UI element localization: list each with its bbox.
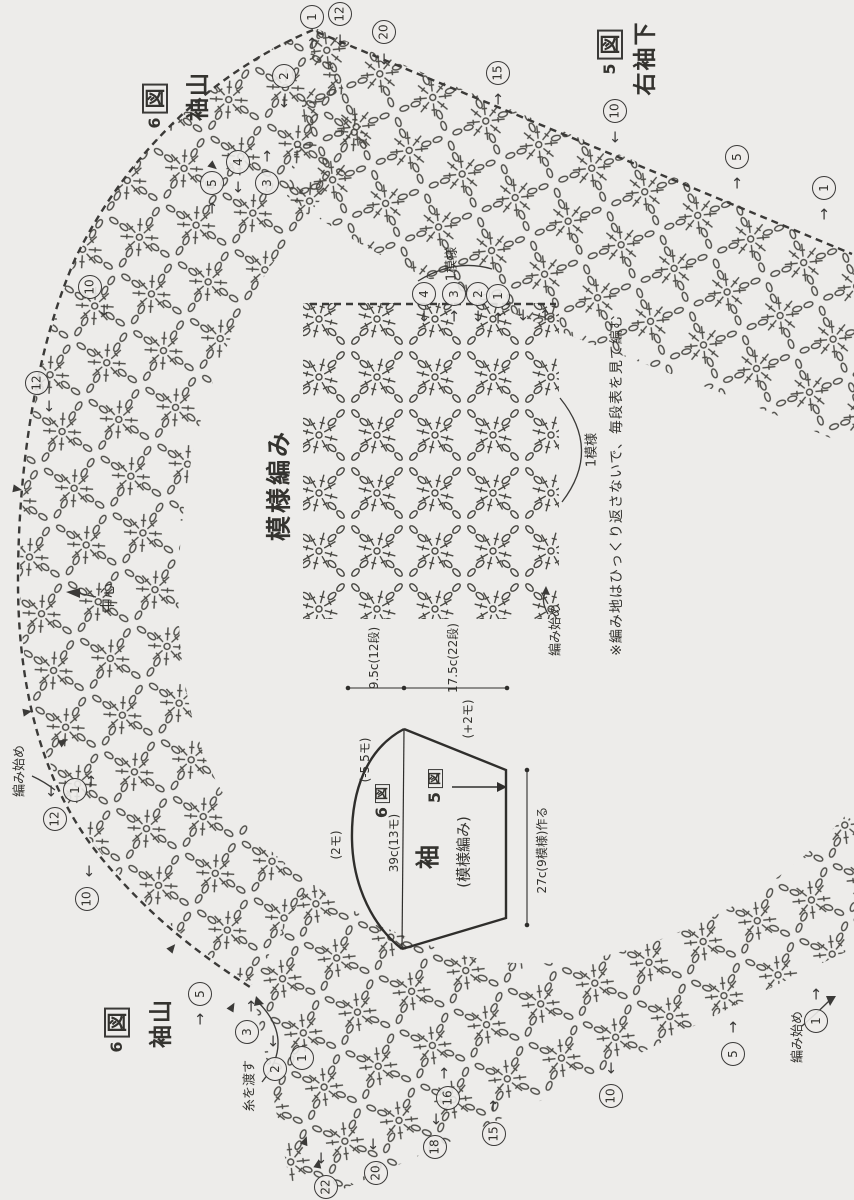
row-marker: 22↓ (314, 1175, 338, 1199)
row-marker-arrow: ↓ (472, 310, 485, 325)
row-marker-arrow: ↑ (818, 208, 831, 223)
schematic-fig5-label: 5 図 (427, 769, 443, 803)
swatch-row-arrow: ↓ (517, 309, 530, 324)
row-marker: 18↓ (423, 1135, 447, 1159)
row-marker: 4↓ (412, 282, 436, 306)
row-marker-arrow: ↓ (605, 1062, 618, 1077)
figure5-top-sublabel: 右袖下 (635, 21, 658, 96)
note-label: ※編み地はひっくり返さないで、毎段表を見て編む (610, 314, 624, 656)
figure6-top-label: 6 図 (142, 83, 168, 128)
row-marker-arrow: ↓ (430, 1113, 443, 1128)
row-marker-arrow: ↑ (245, 1000, 258, 1015)
schematic-cap-decrease: (-5.5モ) (359, 738, 371, 783)
schematic-underarm-increase: (+2モ) (462, 699, 474, 738)
swatch-row-arrow: ↑ (539, 309, 552, 324)
row-marker: 3↑ (442, 282, 466, 306)
row-marker: 15↑ (486, 61, 510, 85)
row-marker: 15↑ (482, 1122, 506, 1146)
schematic-title: 袖 (416, 843, 440, 869)
figure5-top-label: 5 図 (597, 29, 623, 74)
schematic-subtitle: (模様編み) (457, 816, 472, 888)
schematic-cuff-measure: 27c(9模様)作る (536, 807, 548, 894)
row-marker-arrow: ↑ (194, 1013, 207, 1028)
row-marker-arrow: ↑ (727, 1021, 740, 1036)
swatch-pattern-area (303, 303, 559, 619)
one-pattern-right-label: 1模様 (586, 433, 599, 467)
row-marker: 5↑ (725, 145, 749, 169)
row-marker: 5↑ (721, 1042, 745, 1066)
row-marker: 2↓ (263, 1057, 287, 1081)
row-marker-arrow: ↑ (487, 1100, 500, 1115)
row-marker: 12↓ (328, 2, 352, 26)
schematic-length-measure: 17.5c(22段) (447, 623, 459, 693)
row-marker: 3↑ (255, 171, 279, 195)
row-marker-arrow: ↓ (418, 310, 431, 325)
row-marker-arrow: ↓ (278, 96, 291, 111)
row-marker: 10↓ (603, 99, 627, 123)
row-marker-arrow: ↓ (315, 1152, 328, 1167)
schematic-top-count: (2モ) (330, 831, 342, 860)
figure-number: 6 (147, 117, 163, 128)
row-marker: 10↓ (75, 887, 99, 911)
scanned-crochet-pattern-page: 6 図 袖山 5 図 右袖下 6 図 袖山 模様編み 1模様 1模様 中心 編み… (0, 0, 854, 1200)
schematic-cap-height-measure: 9.5c(12段) (368, 627, 380, 689)
row-marker: 12↓ (43, 807, 67, 831)
figure-number: 5 (427, 792, 443, 803)
row-marker-arrow: ↑ (306, 37, 319, 52)
row-marker: 20↓ (372, 20, 396, 44)
row-marker: 2↓ (272, 64, 296, 88)
one-pattern-top-label: 1模様 (446, 247, 459, 281)
row-marker: 4↓ (226, 150, 250, 174)
row-marker-arrow: ↑ (438, 1067, 451, 1082)
row-marker-arrow: ↓ (367, 1138, 380, 1153)
figure-box-glyph: 図 (142, 83, 168, 113)
row-marker-arrow: ↑ (731, 177, 744, 192)
row-marker-arrow: ↑ (492, 93, 505, 108)
figure-box-glyph: 図 (375, 784, 390, 803)
start-bottom-label: 編み始め (792, 1011, 805, 1063)
row-marker-arrow: ↓ (43, 400, 56, 415)
row-marker-arrow: ↑ (448, 310, 461, 325)
row-marker-arrow: ↑ (810, 988, 823, 1003)
band-bottom (252, 815, 854, 1194)
schematic-width-measure: 39c(13モ) (388, 814, 400, 873)
figure6-top-sublabel: 袖山 (188, 71, 211, 121)
row-marker-arrow: ↑ (85, 775, 98, 790)
figure6-bottom-label: 6 図 (104, 1007, 130, 1052)
row-marker-arrow: ↓ (83, 865, 96, 880)
figure-box-glyph: 図 (597, 29, 623, 59)
center-label: 中心 (101, 583, 116, 613)
figure-box-glyph: 図 (104, 1007, 130, 1037)
carry-yarn-label: 糸を渡す (244, 1060, 257, 1112)
row-marker-arrow: ↑ (492, 312, 505, 327)
row-marker: 1↑ (63, 778, 87, 802)
row-marker-arrow: ↓ (232, 181, 245, 196)
row-marker: 5↑ (188, 982, 212, 1006)
row-marker: 5↑ (200, 171, 224, 195)
row-marker-arrow: ↓ (45, 785, 58, 800)
row-marker-arrow: ↓ (267, 1035, 280, 1050)
figure-number: 5 (602, 63, 618, 74)
row-marker-arrow: ↑ (261, 150, 274, 165)
row-marker-arrow: ↓ (609, 131, 622, 146)
row-marker-arrow: ↓ (378, 53, 391, 68)
row-marker-arrow: ↓ (334, 34, 347, 49)
row-marker: 1↑ (804, 1009, 828, 1033)
row-marker: 1 (290, 1046, 314, 1070)
start-swatch-label: 編み始め (550, 604, 563, 656)
row-marker: 20↓ (364, 1161, 388, 1185)
row-marker-arrow: ↓ (98, 304, 111, 319)
row-marker-arrow: ↑ (206, 202, 219, 217)
row-marker: 10↓ (78, 275, 102, 299)
swatch-title: 模様編み (267, 429, 292, 541)
figure-box-glyph: 図 (428, 769, 443, 788)
row-marker: 16↑ (436, 1086, 460, 1110)
row-marker: 10↓ (599, 1084, 623, 1108)
start-left-label: 編み始め (14, 745, 27, 797)
figure6-bottom-sublabel: 袖山 (151, 998, 174, 1048)
row-marker: 1↑ (812, 176, 836, 200)
row-marker: 1↑ (486, 284, 510, 308)
row-marker: 3↑ (235, 1020, 259, 1044)
figure-number: 6 (109, 1041, 125, 1052)
row-marker: 1↑ (300, 5, 324, 29)
row-marker: 12↓ (25, 371, 49, 395)
